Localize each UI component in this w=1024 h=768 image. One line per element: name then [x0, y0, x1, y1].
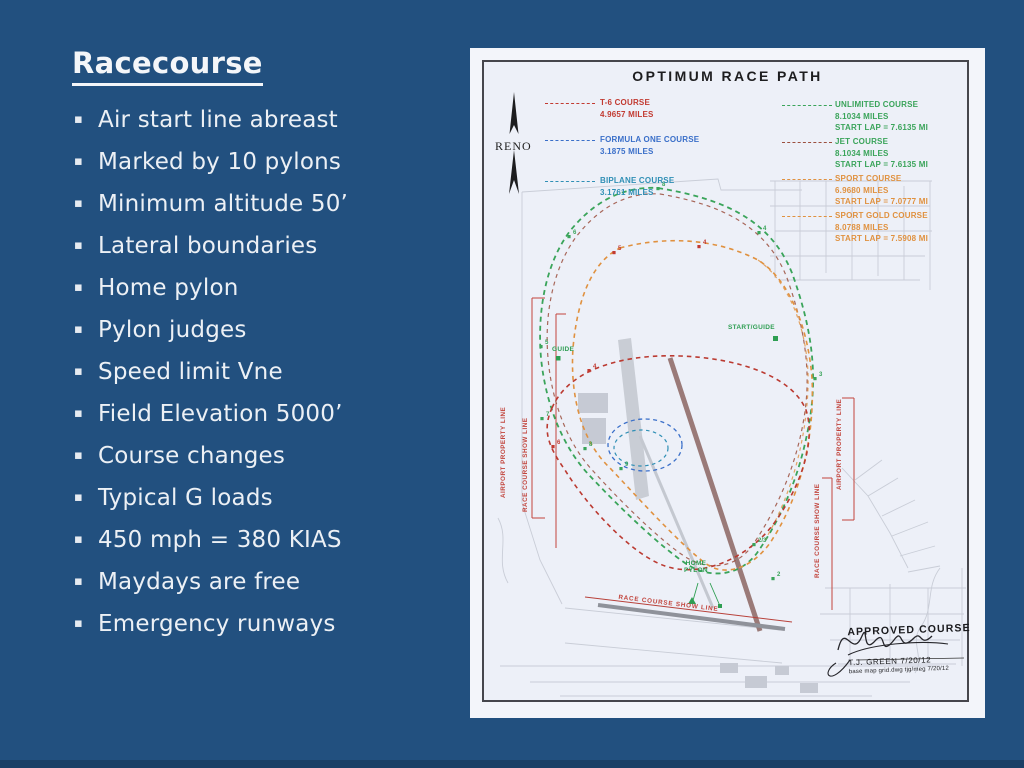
pylon-dot: [619, 467, 622, 470]
list-item: ▪Pylon judges: [74, 311, 474, 353]
bullet-text: Home pylon: [98, 269, 238, 308]
legend-dash-formula-one: [545, 140, 595, 141]
bullet-text: Emergency runways: [98, 605, 336, 644]
airport-property-line-label-left: AIRPORT PROPERTY LINE: [500, 407, 507, 498]
list-item: ▪Home pylon: [74, 269, 474, 311]
bullet-icon: ▪: [74, 184, 83, 223]
legend-label: UNLIMITED COURSE: [835, 99, 928, 111]
legend-value: START LAP = 7.0777 MI: [835, 196, 928, 208]
race-map-image: 864532/329875446 OPTIMUM RACE PATH RENO …: [470, 48, 985, 718]
list-item: ▪Maydays are free: [74, 563, 474, 605]
bullet-icon: ▪: [74, 436, 83, 475]
airport-property-line-label-right: AIRPORT PROPERTY LINE: [836, 399, 843, 490]
page-title: Racecourse: [72, 46, 263, 86]
legend-value: 4.9657 MILES: [600, 109, 654, 121]
guide-label: GUIDE: [552, 346, 574, 353]
legend-entry-formula-one: FORMULA ONE COURSE 3.1875 MILES: [600, 134, 699, 157]
legend-label: JET COURSE: [835, 136, 928, 148]
legend-entry-jet: JET COURSE 8.1034 MILES START LAP = 7.61…: [835, 136, 928, 171]
legend-value: 3.1761 MILES: [600, 187, 674, 199]
bullet-icon: ▪: [74, 562, 83, 601]
list-item: ▪Speed limit Vne: [74, 353, 474, 395]
pylon-dot: [551, 445, 554, 448]
legend-value: 8.1034 MILES: [835, 148, 928, 160]
map-title: OPTIMUM RACE PATH: [470, 68, 985, 84]
legend-value: START LAP = 7.6135 MI: [835, 122, 928, 134]
bullet-text: Lateral boundaries: [98, 227, 317, 266]
list-item: ▪Minimum altitude 50’: [74, 185, 474, 227]
pylon-dot: [757, 231, 760, 234]
bullet-icon: ▪: [74, 226, 83, 265]
bullet-text: Course changes: [98, 437, 285, 476]
legend-label: T-6 COURSE: [600, 97, 654, 109]
legend-label: SPORT COURSE: [835, 173, 928, 185]
legend-dash-sport-gold: [782, 216, 832, 217]
bullet-group-1: ▪Air start line abreast ▪Marked by 10 py…: [74, 101, 474, 395]
legend-dash-t6: [545, 103, 595, 104]
legend-value: 8.0788 MILES: [835, 222, 928, 234]
list-item: ▪Course changes: [74, 437, 474, 479]
bullet-icon: ▪: [74, 478, 83, 517]
bullet-text: Maydays are free: [98, 563, 300, 602]
list-item: ▪Air start line abreast: [74, 101, 474, 143]
compass-label: RENO: [495, 139, 532, 154]
pylon-dot: [583, 447, 586, 450]
list-item: ▪Marked by 10 pylons: [74, 143, 474, 185]
list-item: ▪Typical G loads: [74, 479, 474, 521]
pylon-dot: [752, 543, 755, 546]
race-course-show-line-label-left: RACE COURSE SHOW LINE: [522, 418, 529, 512]
bullet-text: 450 mph = 380 KIAS: [98, 521, 342, 560]
list-item: ▪Lateral boundaries: [74, 227, 474, 269]
legend-dash-biplane: [545, 181, 595, 182]
list-item: ▪450 mph = 380 KIAS: [74, 521, 474, 563]
pylon-dot: [697, 245, 700, 248]
legend-entry-sport-gold: SPORT GOLD COURSE 8.0788 MILES START LAP…: [835, 210, 928, 245]
bullet-group-3: ▪Maydays are free ▪Emergency runways: [74, 563, 474, 647]
bullet-icon: ▪: [74, 394, 83, 433]
legend-label: BIPLANE COURSE: [600, 175, 674, 187]
legend-value: START LAP = 7.6135 MI: [835, 159, 928, 171]
legend-entry-unlimited: UNLIMITED COURSE 8.1034 MILES START LAP …: [835, 99, 928, 134]
legend-label: FORMULA ONE COURSE: [600, 134, 699, 146]
bullet-text: Marked by 10 pylons: [98, 143, 341, 182]
legend-value: 8.1034 MILES: [835, 111, 928, 123]
bullet-text: Air start line abreast: [98, 101, 338, 140]
home-pylon-label: HOME PYLON: [684, 560, 708, 574]
bullet-text: Minimum altitude 50’: [98, 185, 348, 224]
list-item: ▪Emergency runways: [74, 605, 474, 647]
bottom-accent-bar: [0, 760, 1024, 768]
pylon-dot: [771, 577, 774, 580]
pylon-dot: [813, 377, 816, 380]
bullet-text: Speed limit Vne: [98, 353, 283, 392]
bullet-icon: ▪: [74, 520, 83, 559]
legend-entry-sport: SPORT COURSE 6.9680 MILES START LAP = 7.…: [835, 173, 928, 208]
list-item: ▪Field Elevation 5000’: [74, 395, 474, 437]
bullet-icon: ▪: [74, 100, 83, 139]
legend-label: SPORT GOLD COURSE: [835, 210, 928, 222]
pylon-number: 2/3: [758, 538, 767, 544]
legend-value: START LAP = 7.5908 MI: [835, 233, 928, 245]
legend-dash-sport: [782, 179, 832, 180]
race-course-show-line-label-right: RACE COURSE SHOW LINE: [814, 484, 821, 578]
pylon-dot: [540, 417, 543, 420]
bullet-icon: ▪: [74, 352, 83, 391]
approval-block: APPROVED COURSE T.J. GREEN 7/20/12 base …: [847, 622, 979, 676]
bullet-icon: ▪: [74, 310, 83, 349]
bullet-list: ▪Air start line abreast ▪Marked by 10 py…: [74, 101, 474, 647]
legend-value: 3.1875 MILES: [600, 146, 699, 158]
bullet-icon: ▪: [74, 268, 83, 307]
legend-entry-t6: T-6 COURSE 4.9657 MILES: [600, 97, 654, 120]
bullet-text: Pylon judges: [98, 311, 247, 350]
start-guide-label: START/GUIDE: [728, 324, 775, 331]
bullet-icon: ▪: [74, 142, 83, 181]
pylon-dot: [539, 345, 542, 348]
legend-dash-jet: [782, 142, 832, 143]
home-pylon-line2: PYLON: [684, 567, 708, 574]
slide: { "slide": { "title": "Racecourse", "bul…: [0, 0, 1024, 768]
legend-entry-biplane: BIPLANE COURSE 3.1761 MILES: [600, 175, 674, 198]
bullet-group-2: ▪Field Elevation 5000’ ▪Course changes ▪…: [74, 395, 474, 563]
legend-value: 6.9680 MILES: [835, 185, 928, 197]
pylon-dot: [567, 235, 570, 238]
bullet-icon: ▪: [74, 604, 83, 643]
pylon-dot: [612, 251, 615, 254]
pylon-dot: [587, 369, 590, 372]
home-pylon-line1: HOME: [684, 560, 708, 567]
bullet-text: Field Elevation 5000’: [98, 395, 343, 434]
bullet-text: Typical G loads: [98, 479, 273, 518]
legend-dash-unlimited: [782, 105, 832, 106]
